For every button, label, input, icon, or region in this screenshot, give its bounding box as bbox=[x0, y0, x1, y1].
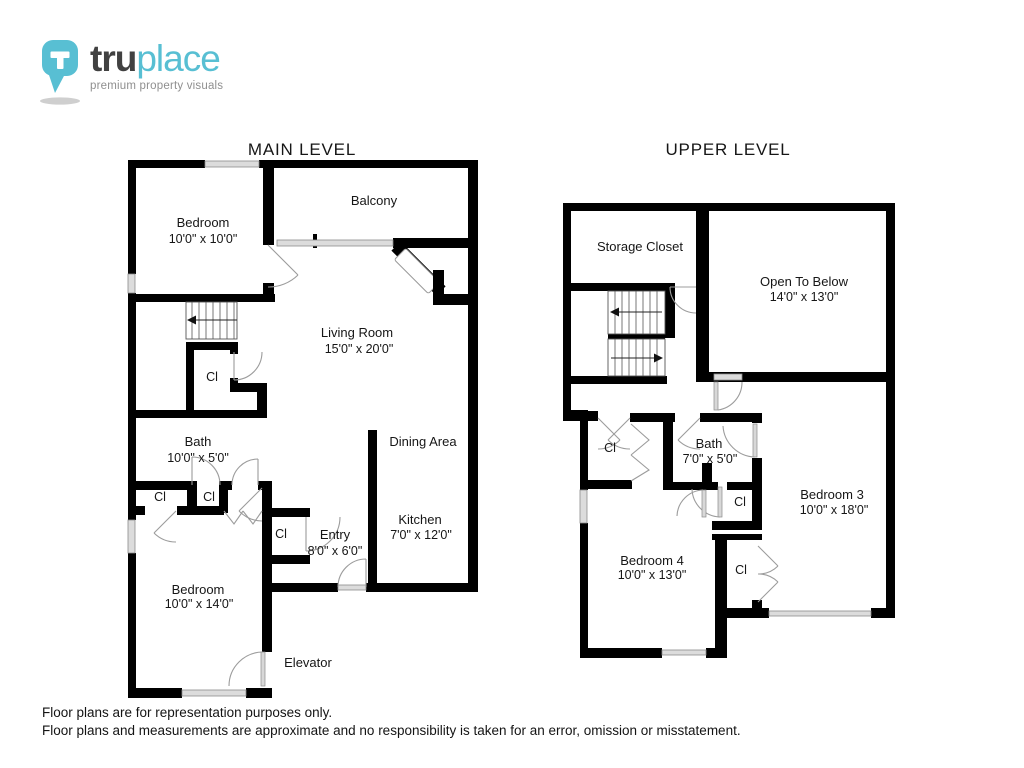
open-to-below-label: Open To Below bbox=[760, 274, 849, 289]
floorplan-page: truplace premium property visuals MAIN L… bbox=[0, 0, 1024, 768]
upper-walls-group bbox=[563, 203, 895, 658]
door-threshold bbox=[714, 374, 742, 380]
closet-b-door-leaf bbox=[718, 487, 722, 517]
entry-dims: 8'0" x 6'0" bbox=[308, 544, 363, 558]
upper-bath-label: Bath bbox=[696, 436, 723, 451]
entry-closet-label: Cl bbox=[275, 527, 287, 541]
upper-level-plan: UPPER LEVEL bbox=[563, 140, 895, 658]
storage-closet-label: Storage Closet bbox=[597, 239, 683, 254]
kitchen-dims: 7'0" x 12'0" bbox=[390, 528, 452, 542]
living-room-label: Living Room bbox=[321, 325, 393, 340]
main-bedroom1-dims: 10'0" x 10'0" bbox=[169, 232, 238, 246]
window bbox=[662, 650, 706, 655]
bedroom4-dims: 10'0" x 13'0" bbox=[618, 568, 687, 582]
open-to-below-dims: 14'0" x 13'0" bbox=[770, 290, 839, 304]
elevator-door-leaf bbox=[261, 652, 265, 686]
door-threshold bbox=[338, 585, 366, 590]
disclaimer: Floor plans are for representation purpo… bbox=[42, 704, 741, 739]
main-bath-dims: 10'0" x 5'0" bbox=[167, 451, 229, 465]
entry-label: Entry bbox=[320, 527, 351, 542]
bedroom3-label: Bedroom 3 bbox=[800, 487, 864, 502]
balcony-label: Balcony bbox=[351, 193, 398, 208]
window bbox=[128, 520, 135, 553]
hall-door-leaf bbox=[714, 382, 718, 410]
window bbox=[580, 490, 587, 523]
balcony-sliding-door bbox=[277, 240, 393, 246]
bedroom4-label: Bedroom 4 bbox=[620, 553, 684, 568]
dining-area-label: Dining Area bbox=[389, 434, 457, 449]
window bbox=[769, 611, 871, 616]
upper-closet-a-label: Cl bbox=[604, 441, 616, 455]
upper-bath-dims: 7'0" x 5'0" bbox=[683, 452, 738, 466]
bath-side-door-leaf bbox=[753, 424, 757, 457]
fireplace bbox=[394, 248, 439, 293]
closet-left-label: Cl bbox=[154, 490, 166, 504]
hall-closet-label: Cl bbox=[206, 370, 218, 384]
bedroom4-door-leaf bbox=[702, 490, 706, 517]
elevator-label: Elevator bbox=[284, 655, 332, 670]
upper-closet-c-label: Cl bbox=[735, 563, 747, 577]
disclaimer-line2: Floor plans and measurements are approxi… bbox=[42, 722, 741, 740]
main-bedroom2-label: Bedroom bbox=[172, 582, 225, 597]
upper-closet-b-label: Cl bbox=[734, 495, 746, 509]
upper-level-title: UPPER LEVEL bbox=[665, 140, 790, 159]
window bbox=[128, 274, 135, 293]
main-bedroom1-label: Bedroom bbox=[177, 215, 230, 230]
closet-mid-label: Cl bbox=[203, 490, 215, 504]
floorplans-svg: MAIN LEVEL bbox=[0, 0, 1024, 768]
main-level-plan: MAIN LEVEL bbox=[128, 140, 478, 698]
window bbox=[205, 161, 259, 167]
upper-stairs bbox=[608, 291, 665, 376]
main-bath-label: Bath bbox=[185, 434, 212, 449]
kitchen-label: Kitchen bbox=[398, 512, 441, 527]
main-level-title: MAIN LEVEL bbox=[248, 140, 356, 159]
bedroom3-dims: 10'0" x 18'0" bbox=[800, 503, 869, 517]
living-room-dims: 15'0" x 20'0" bbox=[325, 342, 394, 356]
main-bedroom2-dims: 10'0" x 14'0" bbox=[165, 597, 234, 611]
main-stairs bbox=[186, 302, 237, 339]
window bbox=[182, 690, 246, 696]
disclaimer-line1: Floor plans are for representation purpo… bbox=[42, 704, 741, 722]
